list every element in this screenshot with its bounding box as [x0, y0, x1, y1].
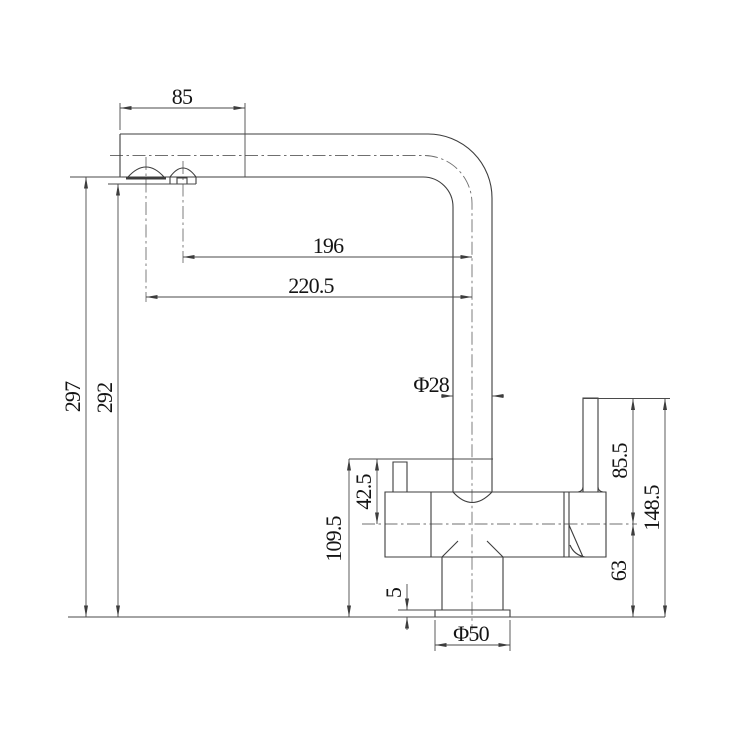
base-flange [435, 610, 510, 617]
dim-label-5: 5 [381, 587, 406, 598]
dimension-phi28: Φ28 [413, 372, 504, 397]
dim-label-85-5: 85.5 [607, 443, 632, 479]
drawing-sheet: 85 196 220.5 297 292 Φ28 42.5 109.5 5 [0, 0, 740, 740]
handle-cap [564, 492, 606, 557]
riser-joint-arc [453, 492, 492, 503]
dim-label-109-5: 109.5 [321, 515, 346, 561]
dimension-63: 63 [606, 524, 633, 617]
base-neck [442, 557, 503, 610]
dim-label-phi28: Φ28 [413, 372, 449, 397]
valve-body [385, 492, 564, 557]
ext-lines-85 [120, 103, 245, 177]
handle-lever-fillets [578, 487, 603, 492]
dim-label-292: 292 [92, 383, 117, 414]
dimension-148-5: 148.5 [639, 399, 665, 618]
side-outlet-stub [393, 462, 407, 492]
dim-label-220-5: 220.5 [288, 273, 334, 298]
dim-label-148-5: 148.5 [639, 484, 664, 530]
spout-inner-edge [120, 177, 453, 492]
faucet-dimension-drawing: 85 196 220.5 297 292 Φ28 42.5 109.5 5 [0, 0, 740, 740]
handle-lever [583, 398, 598, 492]
centerlines [110, 156, 637, 631]
dim-label-85: 85 [172, 84, 193, 109]
faucet-outline [120, 134, 606, 617]
dimension-109-5: 109.5 [321, 459, 349, 617]
spout-outer-edge [120, 134, 492, 492]
dim-label-63: 63 [606, 560, 631, 581]
dim-label-42-5: 42.5 [351, 474, 376, 510]
dimension-292: 292 [92, 184, 196, 617]
dimension-85: 85 [120, 84, 245, 177]
dim-label-phi50: Φ50 [453, 621, 489, 646]
dim-label-196: 196 [313, 233, 344, 258]
dim-label-297: 297 [60, 381, 85, 412]
tee-transition [442, 541, 503, 557]
handle-cap-detail [569, 525, 585, 557]
dimension-5: 5 [381, 584, 436, 630]
dimension-220-5: 220.5 [146, 273, 472, 298]
dimension-196: 196 [183, 233, 472, 258]
dimension-phi50: Φ50 [435, 620, 510, 651]
